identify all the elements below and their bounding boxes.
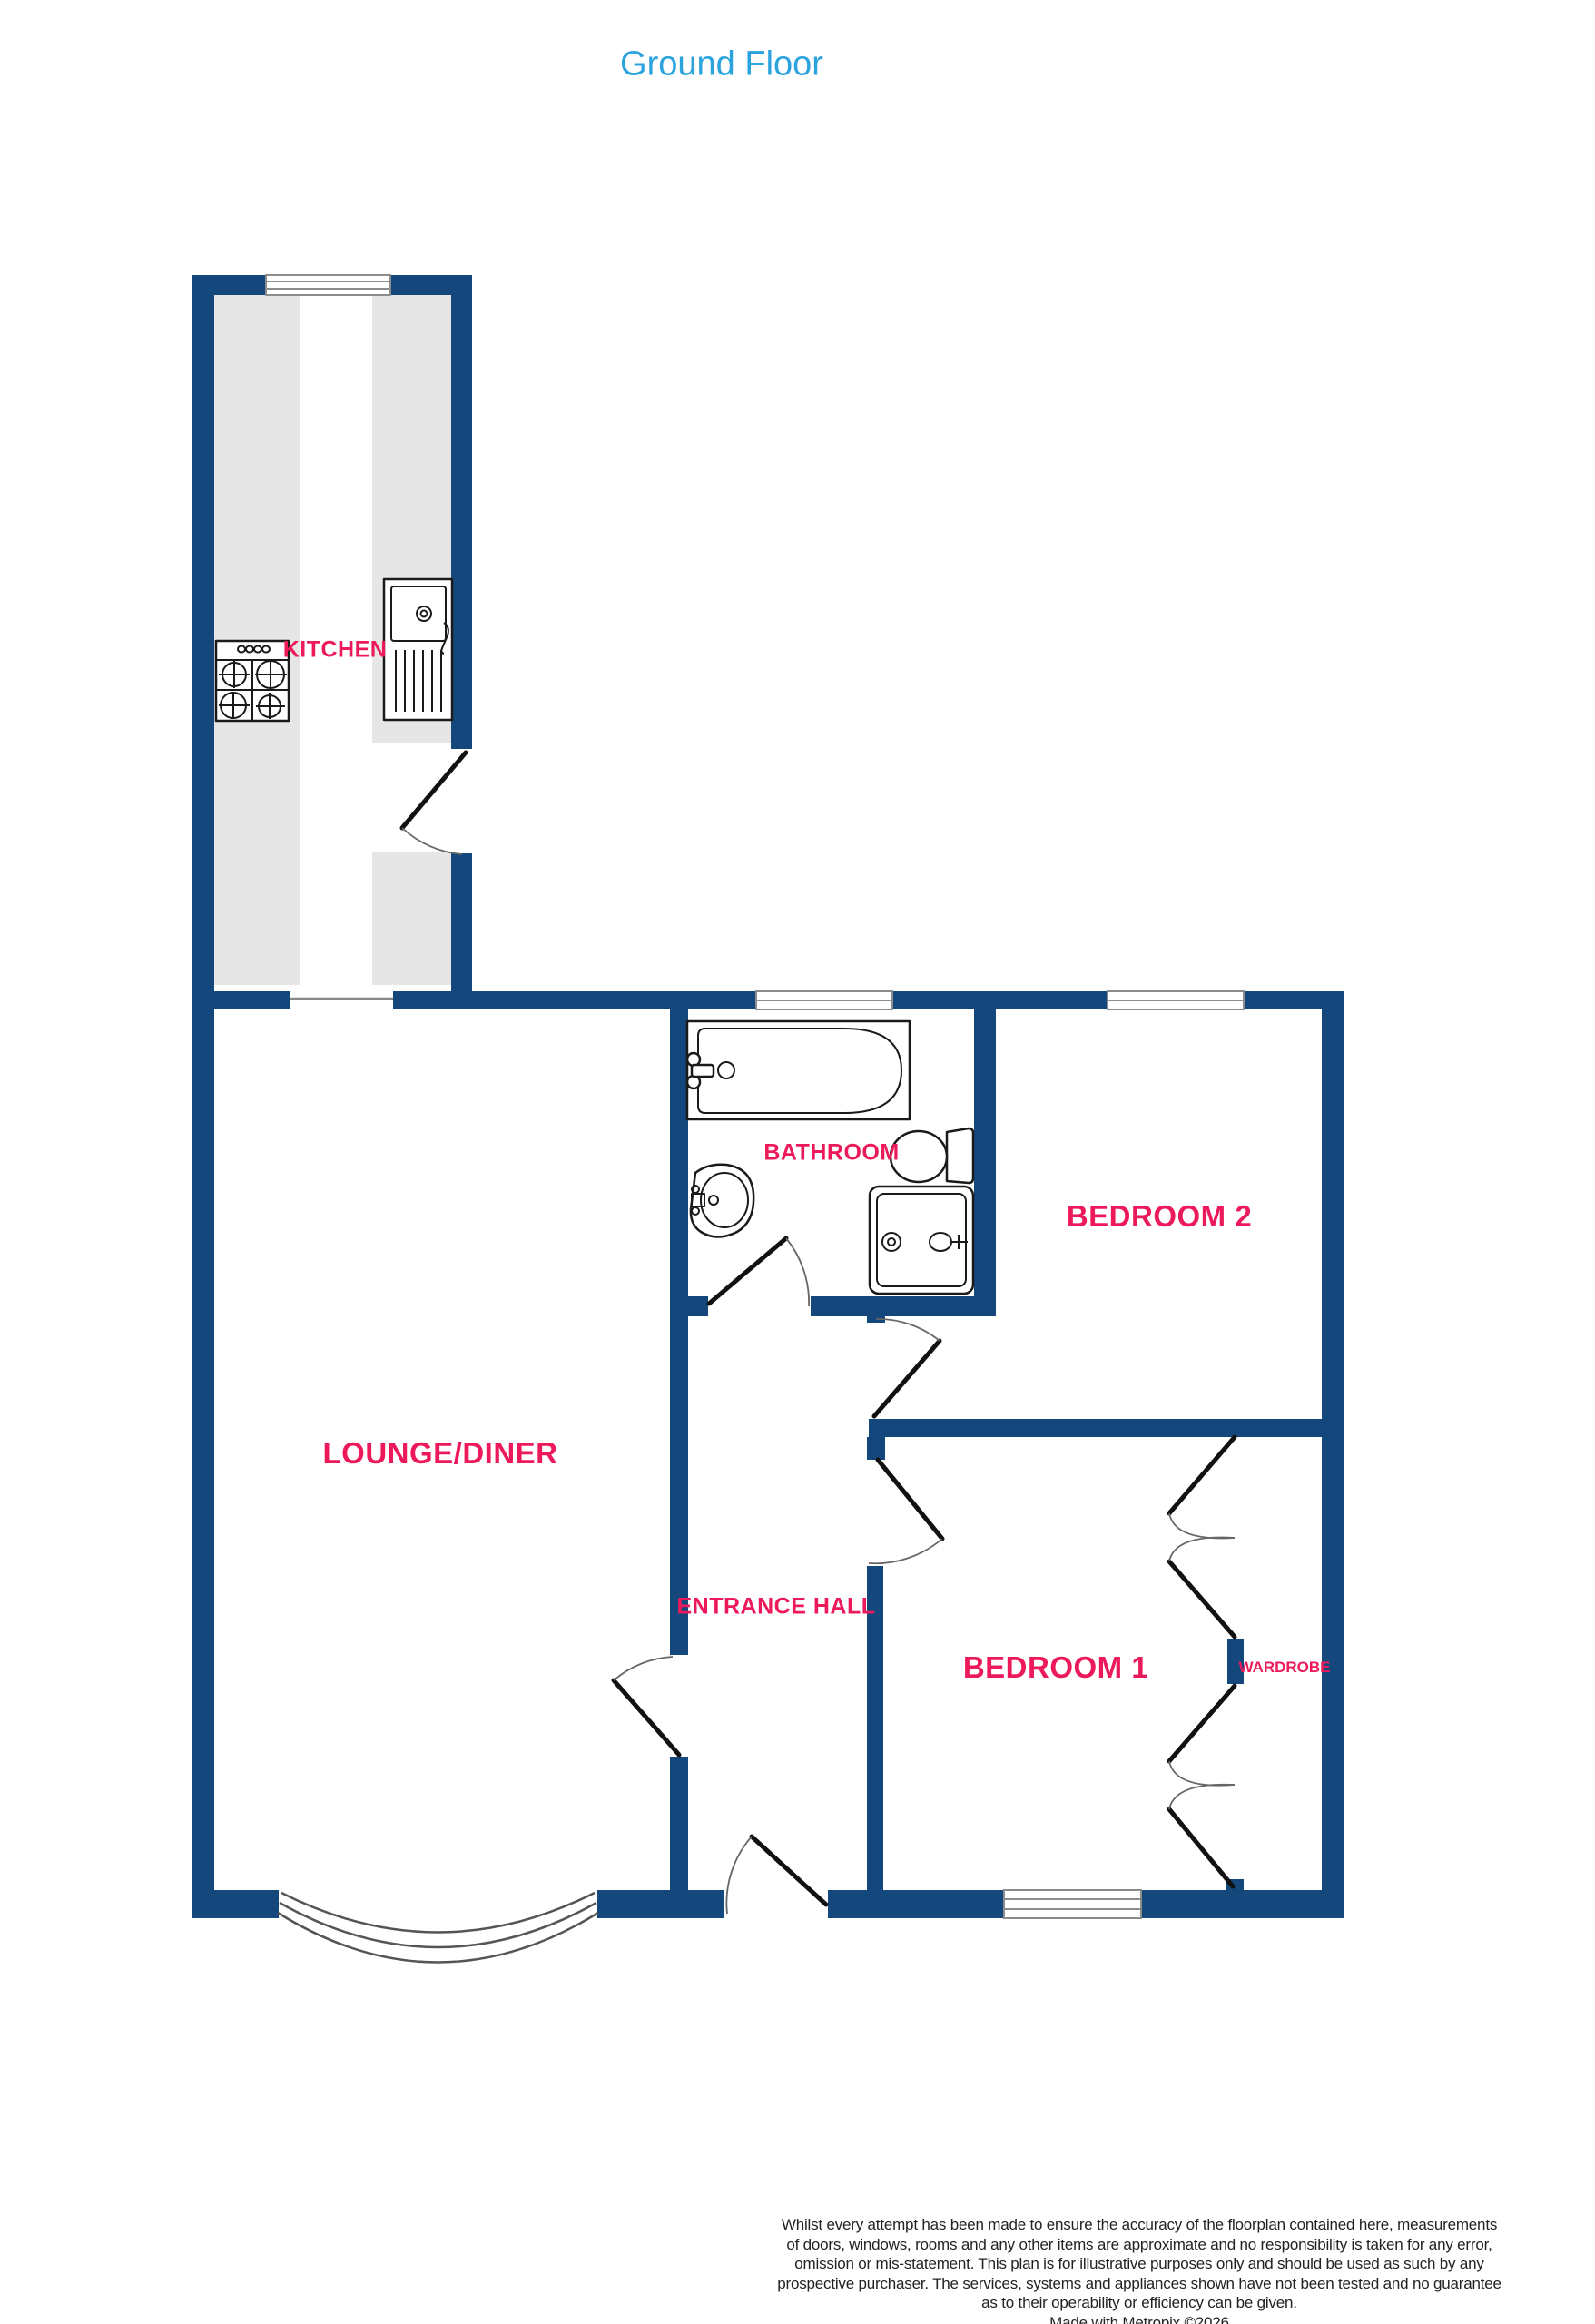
disclaimer-line: of doors, windows, rooms and any other i… [777, 2235, 1501, 2255]
doors [402, 753, 1235, 1914]
bedroom2-label: BEDROOM 2 [1067, 1199, 1252, 1234]
kitchen-window [266, 275, 390, 295]
bathroom-door [709, 1238, 809, 1306]
disclaimer-line: as to their operability or efficiency ca… [777, 2293, 1501, 2313]
wardrobe-bifold-doors [1169, 1437, 1235, 1886]
page-title: Ground Floor [620, 45, 823, 84]
floorplan-page: Ground Floor KITCHEN BATHROOM BEDROOM 2 … [0, 0, 1595, 2324]
disclaimer-text: Whilst every attempt has been made to en… [777, 2215, 1501, 2324]
kitchen-label: KITCHEN [283, 637, 388, 664]
cooker [216, 641, 289, 721]
entrance-hall-label: ENTRANCE HALL [677, 1594, 876, 1620]
bay-window [278, 1893, 598, 1963]
front-door [726, 1837, 826, 1914]
disclaimer-line: prospective purchaser. The services, sys… [777, 2274, 1501, 2294]
shower [870, 1187, 973, 1294]
bedroom1-door [869, 1460, 942, 1563]
kitchen-back-door [402, 753, 466, 854]
toilet [891, 1128, 973, 1183]
bedroom1-window [1004, 1890, 1141, 1918]
lounge-door [614, 1657, 679, 1755]
bedroom2-window [1108, 991, 1244, 1009]
bathroom-label: BATHROOM [763, 1140, 899, 1167]
bathtub [687, 1021, 910, 1119]
lounge-diner-label: LOUNGE/DINER [322, 1436, 557, 1471]
bathroom-sink [691, 1165, 753, 1237]
bedroom2-door [874, 1319, 940, 1416]
disclaimer-credit: Made with Metropix ©2026 [777, 2313, 1501, 2324]
bathroom-window [756, 991, 892, 1009]
disclaimer-line: omission or mis-statement. This plan is … [777, 2254, 1501, 2274]
bedroom1-label: BEDROOM 1 [963, 1650, 1148, 1685]
disclaimer-line: Whilst every attempt has been made to en… [777, 2215, 1501, 2235]
wardrobe-label: WARDROBE [1238, 1659, 1330, 1677]
kitchen-sink [384, 579, 452, 720]
